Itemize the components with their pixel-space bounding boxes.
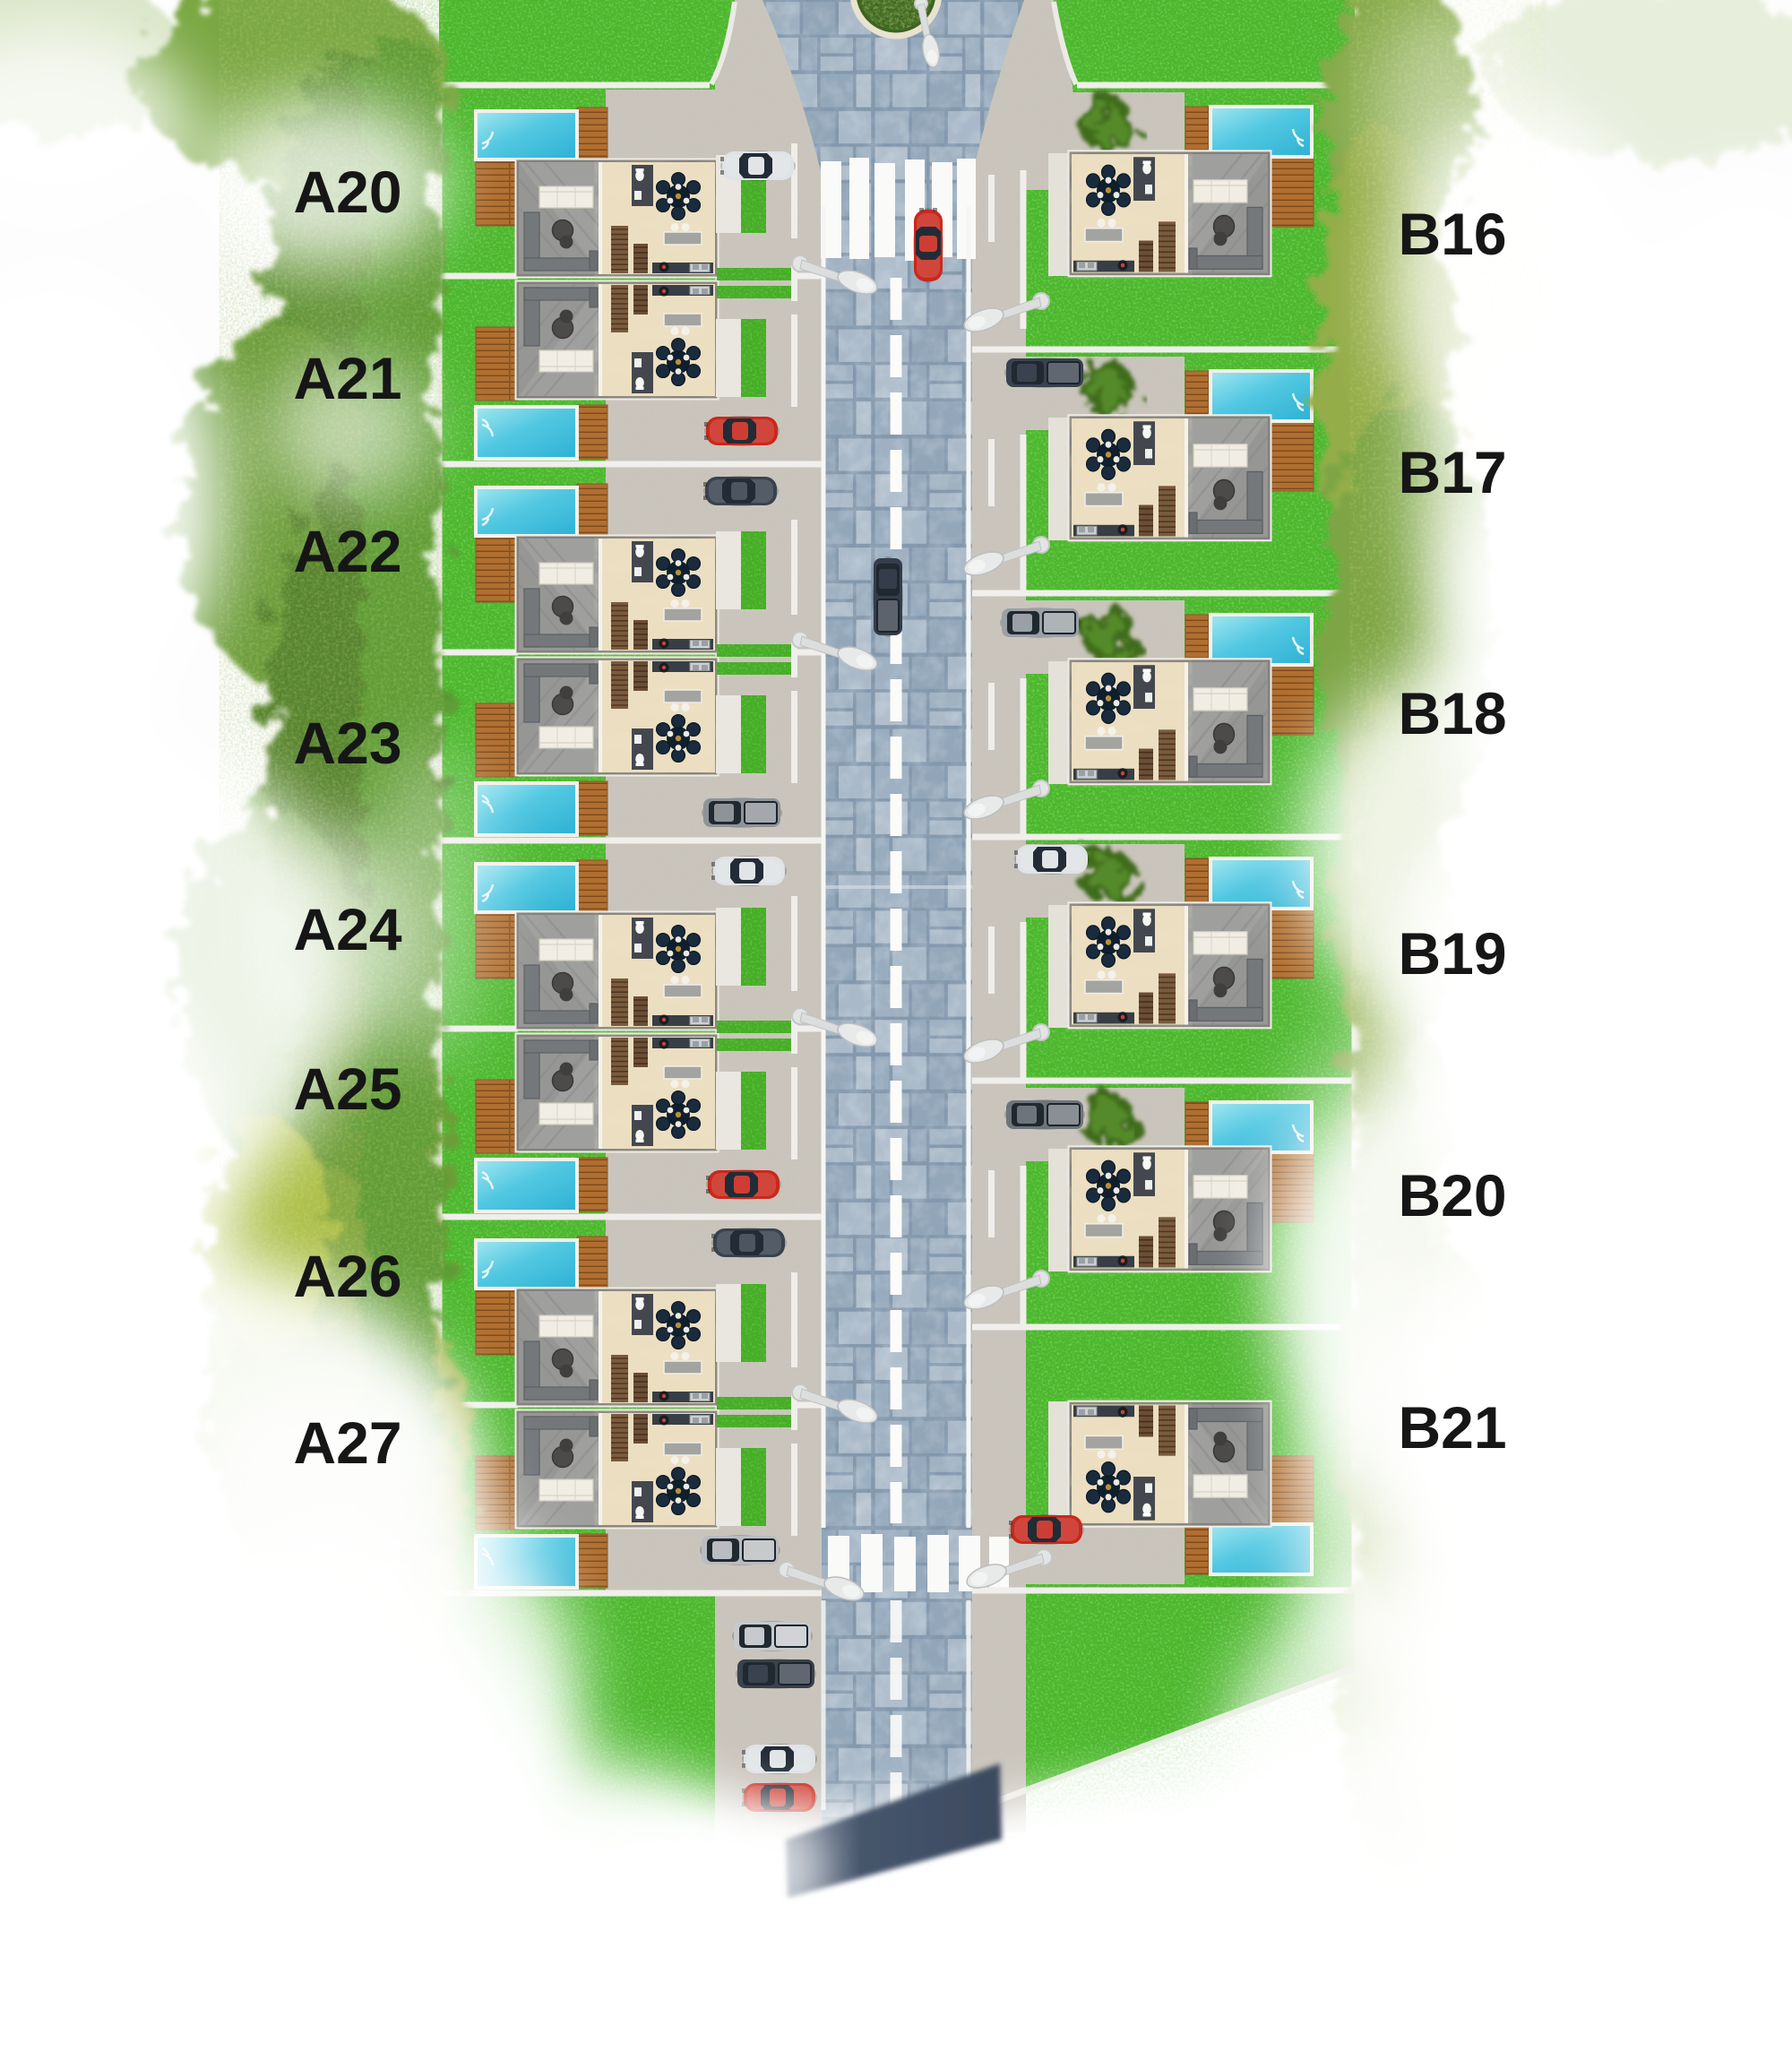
svg-text:B19: B19	[1398, 920, 1506, 987]
svg-text:B18: B18	[1398, 680, 1506, 746]
svg-text:A25: A25	[293, 1056, 401, 1122]
svg-text:A22: A22	[293, 518, 401, 584]
svg-text:A23: A23	[293, 710, 401, 776]
svg-text:A21: A21	[293, 345, 401, 411]
svg-text:B17: B17	[1398, 439, 1506, 505]
svg-text:B21: B21	[1398, 1394, 1506, 1461]
svg-text:B16: B16	[1398, 201, 1506, 267]
svg-text:A27: A27	[293, 1409, 401, 1476]
svg-text:B20: B20	[1398, 1162, 1506, 1228]
svg-text:A24: A24	[293, 896, 401, 962]
svg-text:A26: A26	[293, 1243, 401, 1309]
svg-text:A20: A20	[293, 159, 401, 225]
